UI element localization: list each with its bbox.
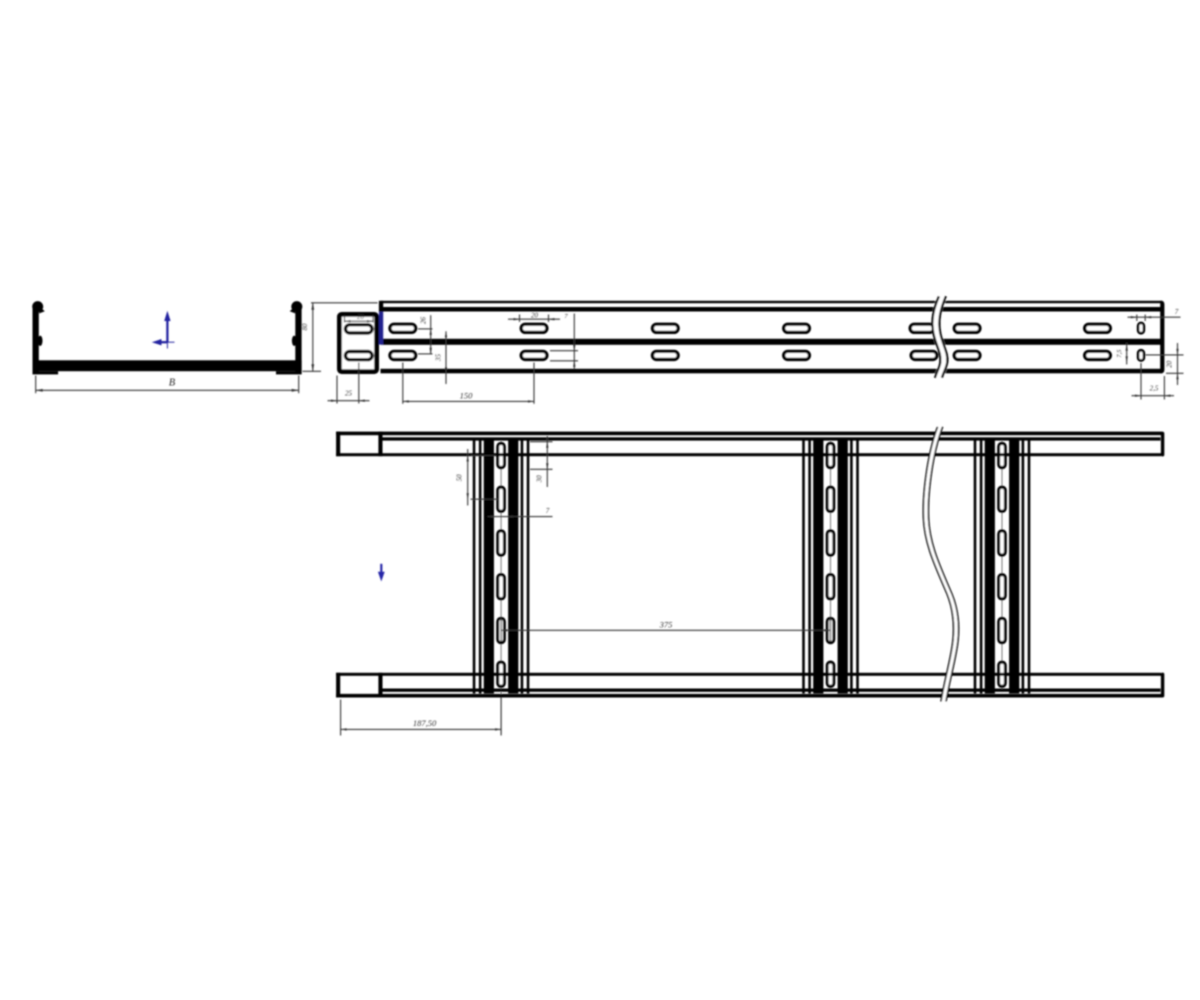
svg-text:375: 375 bbox=[659, 619, 673, 629]
svg-text:7: 7 bbox=[546, 507, 550, 515]
svg-text:35: 35 bbox=[435, 354, 443, 363]
svg-text:2,5: 2,5 bbox=[1150, 384, 1159, 392]
svg-text:187,50: 187,50 bbox=[413, 718, 437, 728]
svg-text:B: B bbox=[169, 377, 176, 388]
svg-text:20: 20 bbox=[357, 313, 365, 321]
svg-text:20: 20 bbox=[531, 312, 539, 320]
svg-text:80: 80 bbox=[301, 323, 309, 331]
svg-text:7: 7 bbox=[1175, 308, 1179, 316]
svg-text:25: 25 bbox=[345, 389, 353, 397]
svg-text:150: 150 bbox=[460, 390, 474, 400]
svg-text:20: 20 bbox=[1166, 360, 1174, 368]
svg-text:50: 50 bbox=[456, 474, 464, 482]
svg-text:30: 30 bbox=[535, 475, 543, 484]
svg-text:7,5: 7,5 bbox=[1116, 349, 1123, 358]
svg-text:26: 26 bbox=[420, 317, 428, 325]
